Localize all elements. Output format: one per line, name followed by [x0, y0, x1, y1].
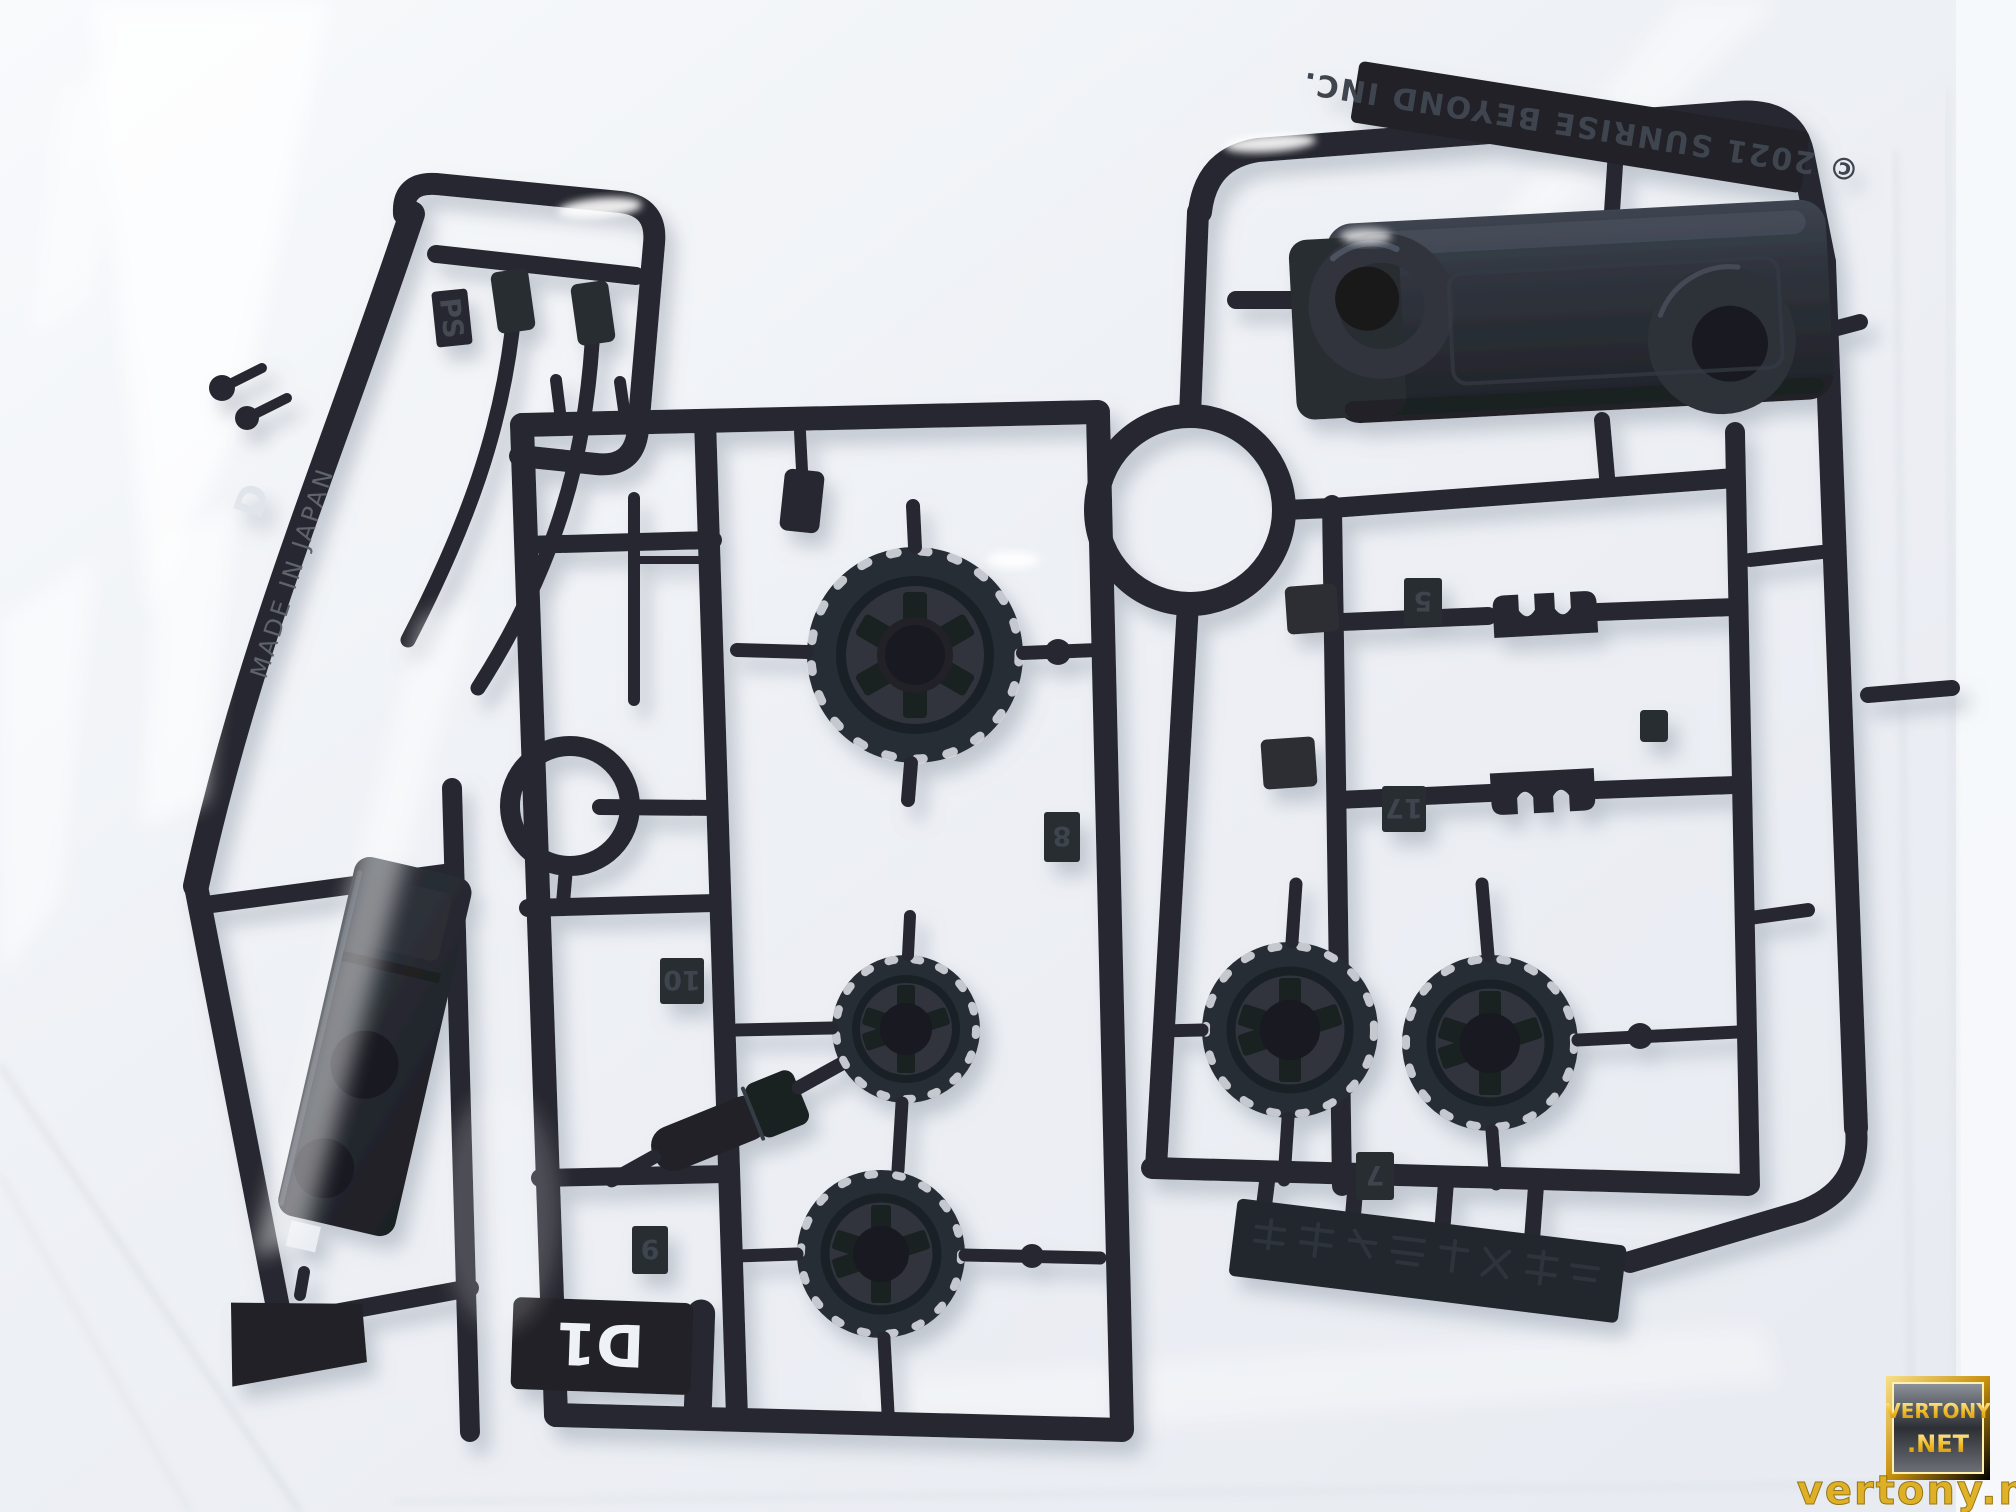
watermark-line2: .NET: [1907, 1430, 1970, 1458]
watermark-badge: VERTONY .NET: [1885, 1376, 1991, 1480]
photo-model-kit-sprue-in-bag: PS MADE IN JAPAN D: [0, 0, 2016, 1512]
watermark-line1: VERTONY: [1885, 1399, 1991, 1423]
bag-front-sheen: [0, 0, 2016, 1512]
sprue-photo-canvas: PS MADE IN JAPAN D: [0, 0, 2016, 1512]
watermark-url: vertony.net: [1797, 1468, 2016, 1512]
